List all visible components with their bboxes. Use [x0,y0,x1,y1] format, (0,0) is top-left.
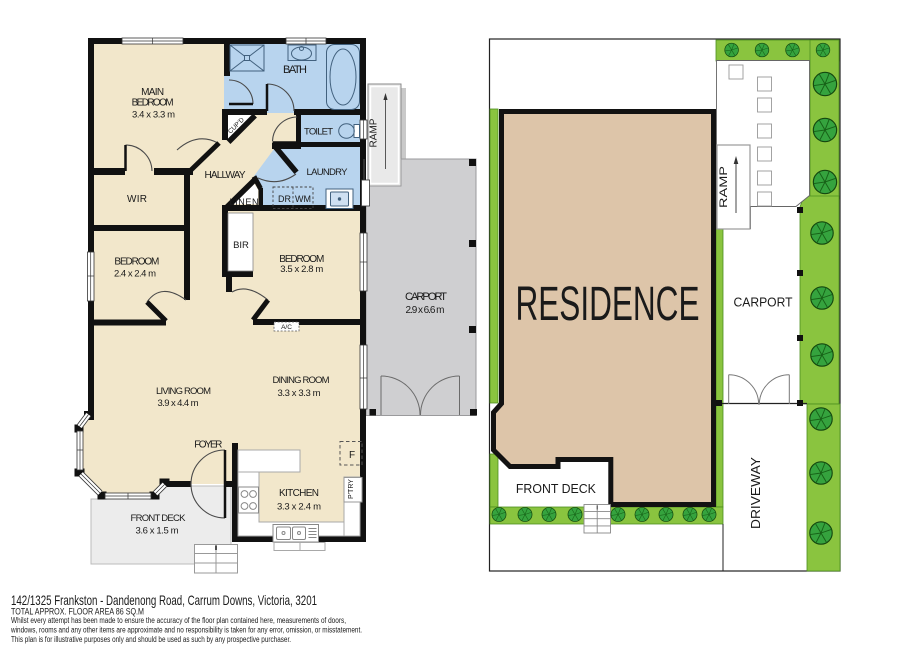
svg-text:A/C: A/C [281,324,292,331]
svg-text:BEDROOM: BEDROOM [114,257,159,268]
svg-text:3.9 x 4.4 m: 3.9 x 4.4 m [158,398,199,409]
svg-text:This plan is for illustrative: This plan is for illustrative purposes o… [11,635,291,644]
svg-text:2.9 x 6.6 m: 2.9 x 6.6 m [406,305,445,316]
svg-text:FOYER: FOYER [194,440,222,451]
svg-text:LINEN: LINEN [230,197,259,207]
svg-text:CARPORT: CARPORT [734,296,793,310]
svg-text:windows, rooms and any other i: windows, rooms and any other items are a… [10,626,362,635]
svg-text:P'TRY: P'TRY [348,479,355,499]
svg-text:BATH: BATH [283,64,307,76]
svg-text:TOTAL APPROX. FLOOR AREA 86 SQ: TOTAL APPROX. FLOOR AREA 86 SQ.M [11,607,144,617]
svg-text:DR: DR [278,194,291,204]
svg-text:BIR: BIR [233,240,249,251]
svg-text:3.6 x 1.5 m: 3.6 x 1.5 m [136,526,179,537]
svg-text:3.4 x 3.3 m: 3.4 x 3.3 m [132,110,175,121]
svg-text:FRONT DECK: FRONT DECK [131,513,187,524]
svg-text:FRONT DECK: FRONT DECK [516,482,597,496]
svg-text:HALLWAY: HALLWAY [205,170,246,181]
svg-text:3.3 x 3.3 m: 3.3 x 3.3 m [278,388,321,399]
svg-text:MAIN: MAIN [141,87,164,98]
svg-text:RAMP: RAMP [718,166,730,208]
svg-text:DINING ROOM: DINING ROOM [273,375,330,386]
svg-text:Whilst every attempt has been: Whilst every attempt has been made to en… [11,616,346,625]
svg-text:WIR: WIR [127,194,147,205]
svg-text:LIVING ROOM: LIVING ROOM [156,386,211,397]
svg-text:CARPORT: CARPORT [405,291,447,303]
svg-text:WM: WM [295,194,311,204]
svg-text:RAMP: RAMP [369,118,380,147]
svg-text:KITCHEN: KITCHEN [279,488,319,499]
svg-text:3.5 x 2.8 m: 3.5 x 2.8 m [280,264,323,275]
svg-text:BEDROOM: BEDROOM [132,98,174,109]
svg-text:F: F [349,450,355,461]
svg-text:LAUNDRY: LAUNDRY [307,167,349,178]
svg-text:3.3 x 2.4 m: 3.3 x 2.4 m [277,502,321,513]
svg-text:DRIVEWAY: DRIVEWAY [749,456,763,529]
svg-text:RESIDENCE: RESIDENCE [516,278,700,331]
svg-text:TOILET: TOILET [304,127,333,138]
svg-text:2.4 x 2.4 m: 2.4 x 2.4 m [114,269,156,280]
